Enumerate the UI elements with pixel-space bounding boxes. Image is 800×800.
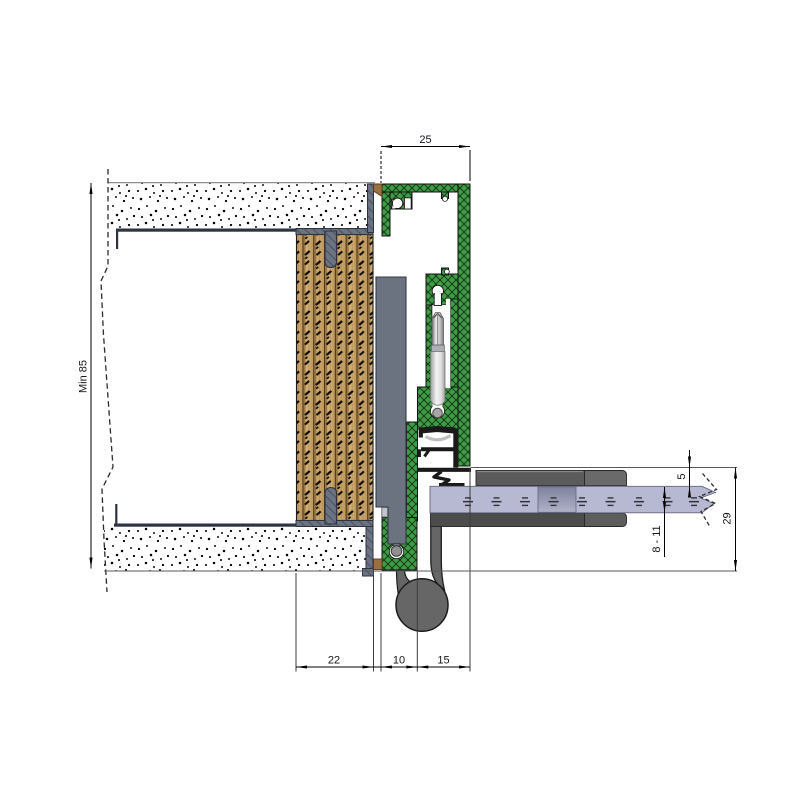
svg-text:5: 5 — [676, 473, 688, 479]
svg-text:29: 29 — [722, 512, 734, 524]
svg-text:25: 25 — [419, 134, 431, 146]
svg-text:10: 10 — [393, 655, 405, 667]
svg-text:15: 15 — [437, 655, 449, 667]
svg-text:8 - 11: 8 - 11 — [651, 525, 663, 552]
svg-text:22: 22 — [328, 655, 340, 667]
svg-text:Min 85: Min 85 — [78, 360, 90, 393]
